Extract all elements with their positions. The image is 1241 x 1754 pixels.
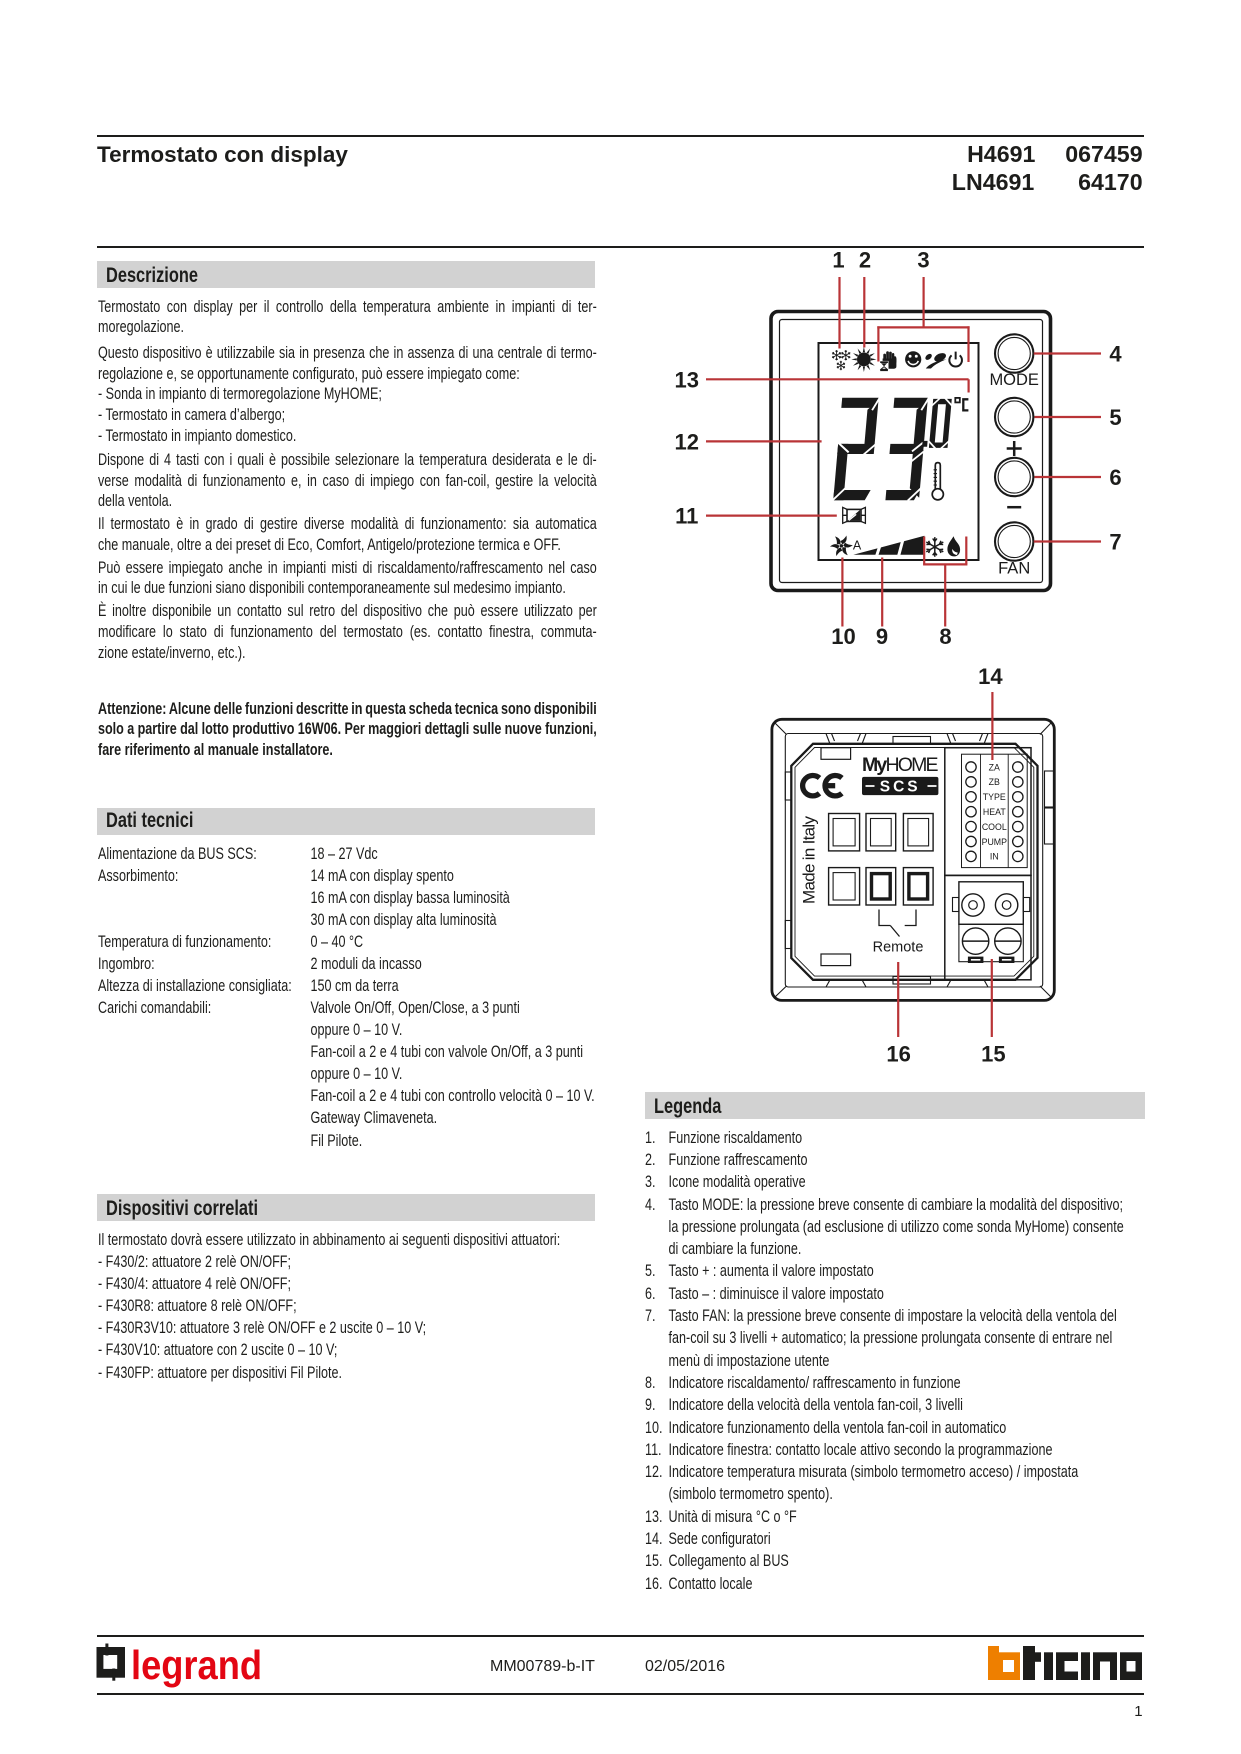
- svg-text:A: A: [853, 538, 862, 552]
- svg-text:1: 1: [832, 250, 844, 273]
- svg-text:PUMP: PUMP: [982, 837, 1008, 847]
- svg-text:HEAT: HEAT: [983, 807, 1006, 817]
- svg-text:SCS: SCS: [880, 779, 921, 796]
- svg-text:15: 15: [981, 1042, 1005, 1067]
- svg-text:13: 13: [674, 368, 698, 393]
- svg-text:MODE: MODE: [989, 371, 1039, 389]
- svg-text:2: 2: [859, 250, 871, 273]
- svg-text:3: 3: [917, 250, 929, 273]
- svg-text:IN: IN: [990, 852, 999, 862]
- svg-text:5: 5: [1109, 405, 1121, 430]
- svg-text:10: 10: [831, 624, 855, 649]
- svg-text:16: 16: [886, 1042, 910, 1067]
- svg-text:4: 4: [1109, 342, 1122, 367]
- svg-text:6: 6: [1109, 465, 1121, 490]
- svg-text:14: 14: [978, 664, 1003, 689]
- svg-text:TYPE: TYPE: [983, 792, 1006, 802]
- svg-text:COOL: COOL: [982, 822, 1007, 832]
- svg-text:9: 9: [876, 624, 888, 649]
- svg-text:ZB: ZB: [989, 777, 1000, 787]
- svg-text:Made in Italy: Made in Italy: [800, 816, 819, 905]
- svg-text:ZA: ZA: [989, 762, 1000, 772]
- svg-text:12: 12: [674, 429, 698, 454]
- svg-text:7: 7: [1109, 530, 1121, 555]
- svg-text:Remote: Remote: [873, 939, 924, 955]
- svg-text:11: 11: [675, 504, 698, 529]
- svg-text:MyHOME: MyHOME: [862, 754, 939, 776]
- svg-text:FAN: FAN: [998, 560, 1030, 578]
- svg-text:8: 8: [939, 624, 951, 649]
